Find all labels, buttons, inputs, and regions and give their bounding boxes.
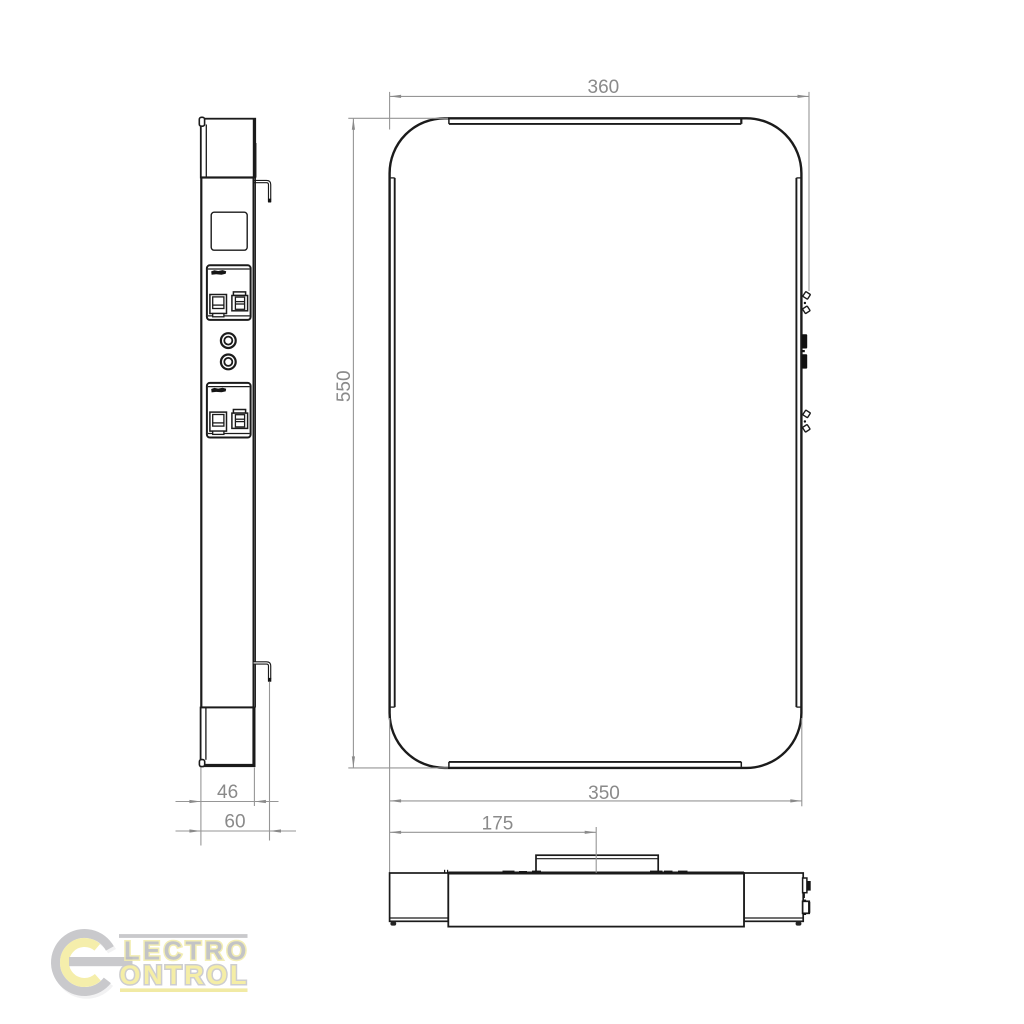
- svg-text:350: 350: [588, 783, 620, 804]
- svg-text:46: 46: [217, 782, 238, 803]
- svg-text:175: 175: [482, 814, 514, 835]
- svg-text:360: 360: [588, 77, 620, 98]
- svg-text:60: 60: [224, 812, 245, 833]
- svg-text:ONTROL: ONTROL: [120, 960, 250, 990]
- svg-text:550: 550: [334, 370, 355, 402]
